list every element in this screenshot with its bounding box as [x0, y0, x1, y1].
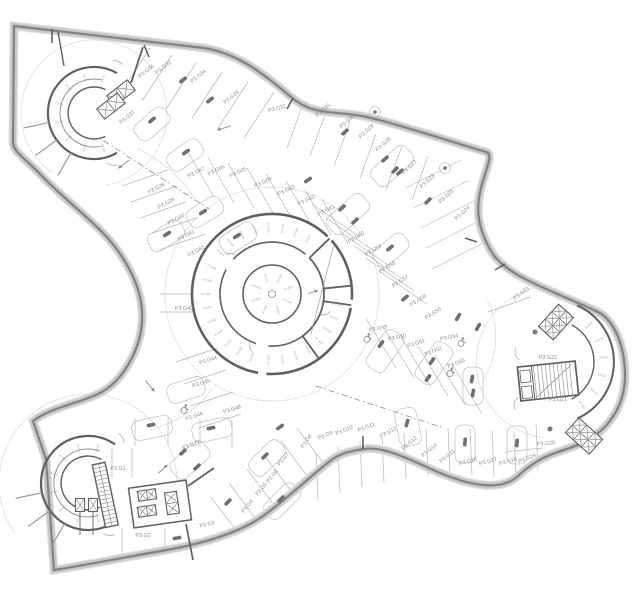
stall-label-P3.G20: P3.G20	[537, 440, 556, 448]
stall-label-P3.G23: P3.G23	[512, 286, 530, 302]
storage-label-P3.S56: P3.S56	[275, 273, 283, 283]
stall-label-P3.G24: P3.G24	[454, 205, 472, 222]
topleft-core	[24, 32, 143, 175]
stall-label-P3.G37: P3.G37	[118, 110, 136, 126]
storage-label-P3.S40: P3.S40	[201, 292, 211, 296]
storage-label-P3.S54: P3.S54	[216, 248, 226, 257]
storage-label-P3.S20: P3.S20	[578, 400, 587, 410]
stall-label-P3.G38: P3.G38	[147, 182, 166, 196]
flow-arrow	[308, 290, 318, 294]
storage-label-P3.S57: P3.S57	[263, 273, 270, 283]
flow-arrow	[145, 379, 155, 393]
storage-label-P3.S34: P3.S34	[322, 326, 332, 335]
stall-label-P3.G66: P3.G66	[207, 164, 226, 177]
storage-label-P3.S60: P3.S60	[261, 304, 269, 314]
storage-label-P3.S8: P3.S8	[100, 144, 106, 153]
stall-label-P3.G47: P3.G47	[182, 440, 201, 451]
stall-label-P3.G52: P3.G52	[424, 346, 443, 358]
stall-label-P3.G7: P3.G7	[277, 452, 291, 468]
storage-label-P3.S36: P3.S36	[332, 302, 342, 307]
stall-label-P3.G11: P3.G11	[357, 422, 376, 434]
stall-label-P3.G62: P3.G62	[297, 194, 316, 207]
storage-label-P3.S24: P3.S24	[594, 336, 604, 344]
storage-label-P3.S33: P3.S33	[314, 336, 324, 346]
storage-label-P3.S14: P3.S14	[58, 503, 68, 513]
storage-label-P3.S31: P3.S31	[292, 351, 299, 361]
stall-label-P3.G54: P3.G54	[440, 333, 459, 343]
storage-label-P3.S22: P3.S22	[597, 372, 607, 378]
storage-label-P3.S39: P3.S39	[203, 277, 213, 283]
flow-arrow	[157, 464, 169, 473]
storage-label-P3.S32: P3.S32	[304, 344, 313, 354]
stall-label-P3.G32: P3.G32	[268, 104, 287, 115]
storage-label-P3.S35: P3.S35	[329, 314, 339, 321]
storage-label-P3.S61: P3.S61	[274, 305, 281, 315]
right-core-stair	[517, 361, 578, 401]
storage-label-P3.S41: P3.S41	[203, 305, 213, 311]
stall-label-P3.G57: P3.G57	[391, 274, 410, 289]
storage-label-P3.S38: P3.S38	[207, 263, 217, 271]
storage-label-P3.S4: P3.S4	[55, 101, 64, 107]
stall-label-P3.G13: P3.G13	[401, 436, 419, 452]
storage-label-P3.S44: P3.S44	[223, 338, 232, 348]
stall-label-P3.G45: P3.G45	[192, 378, 211, 389]
flow-arrow	[117, 160, 131, 170]
storage-label-P3.S2: P3.S2	[82, 74, 88, 83]
stall-label-P3.G1: P3.G1	[110, 466, 125, 472]
stall-label-P3.G12: P3.G12	[379, 426, 398, 440]
stall-label-P3.G29: P3.G29	[358, 123, 376, 140]
wheelchair-icon	[181, 404, 189, 413]
stall-label-P3.G35: P3.G35	[154, 60, 172, 76]
stall-label-P3.G44: P3.G44	[199, 355, 218, 366]
storage-label-P3.S15: P3.S15	[76, 512, 82, 522]
stall-label-P3.G15: P3.G15	[438, 449, 456, 465]
stall-label-P3.G34: P3.G34	[189, 69, 207, 85]
storage-label-P3.S49: P3.S49	[280, 224, 285, 234]
storage-label-P3.S16: P3.S16	[94, 513, 100, 523]
stall-label-P3.G10: P3.G10	[335, 425, 354, 437]
stall-label-P3.G16: P3.G16	[459, 457, 478, 468]
stall-label-P3.G14: P3.G14	[420, 443, 438, 459]
wheelchair-icon	[458, 337, 466, 346]
storage-label-P3.S62: P3.S62	[282, 297, 292, 305]
storage-label-P3.S23: P3.S23	[599, 355, 609, 360]
stall-label-P3.G17: P3.G17	[479, 457, 498, 468]
stall-label-P3.G25: P3.G25	[438, 188, 456, 205]
stall-label-P3.G56: P3.G56	[409, 293, 428, 308]
storage-label-P3.S10: P3.S10	[76, 443, 82, 453]
stall-label-P3.G63: P3.G63	[277, 184, 296, 197]
stall-label-P3.G55: P3.G55	[424, 306, 443, 321]
storage-label-P3.S59: P3.S59	[251, 296, 261, 303]
storage-label-P3.S43: P3.S43	[214, 328, 224, 337]
storage-label-P3.S45: P3.S45	[235, 346, 243, 356]
storage-label-P3.S1: P3.S1	[100, 74, 106, 83]
storage-label-P3.S25: P3.S25	[584, 320, 594, 330]
storage-label-P3.S11: P3.S11	[58, 453, 67, 462]
parking-floor-plan-drawing: P3.G1P3.G2P3.G3P3.G4P3.G5P3.G6P3.G7P3.G8…	[0, 0, 635, 604]
stall-label-P3.G48: P3.G48	[223, 404, 242, 415]
stall-label-P3.G28: P3.G28	[375, 136, 393, 153]
stall-label-P3.G36: P3.G36	[137, 64, 155, 80]
storage-label-P3.S51: P3.S51	[252, 225, 258, 235]
storage-label-P3.S5: P3.S5	[55, 119, 64, 125]
stall-label-P3.G43: P3.G43	[175, 306, 193, 312]
stall-label-P3.G3: P3.G3	[199, 520, 215, 529]
storage-label-P3.S30: P3.S30	[280, 354, 285, 364]
storage-label-P3.S42: P3.S42	[207, 317, 217, 325]
storage-label-P3.S21: P3.S21	[590, 388, 600, 397]
stall-label-P3.G21: P3.G21	[549, 397, 567, 403]
stall-label-P3.G18: P3.G18	[499, 457, 518, 468]
stall-label-P3.G26: P3.G26	[419, 173, 437, 190]
stall-label-P3.G65: P3.G65	[229, 166, 248, 179]
storage-label-P3.S55: P3.S55	[283, 285, 293, 292]
storage-label-P3.S48: P3.S48	[292, 227, 299, 237]
storage-label-P3.S29: P3.S29	[266, 355, 270, 365]
stall-label-P3.G9: P3.G9	[317, 430, 333, 441]
storage-label-P3.S53: P3.S53	[226, 238, 235, 248]
stall-label-P3.G51: P3.G51	[407, 338, 426, 349]
bottomleft-service-block	[128, 480, 191, 528]
storage-label-P3.S47: P3.S47	[304, 233, 313, 243]
storage-label-P3.S58: P3.S58	[252, 283, 262, 291]
storage-label-P3.S7: P3.S7	[82, 143, 88, 152]
storage-label-P3.S50: P3.S50	[266, 223, 270, 233]
storage-label-P3.S46: P3.S46	[248, 351, 255, 361]
stall-label-P3.G27: P3.G27	[401, 159, 419, 176]
stall-label-P3.G2: P3.G2	[135, 533, 150, 539]
floorplan-canvas: P3.G1P3.G2P3.G3P3.G4P3.G5P3.G6P3.G7P3.G8…	[0, 0, 635, 604]
stall-label-P3.G22: P3.G22	[539, 355, 557, 361]
